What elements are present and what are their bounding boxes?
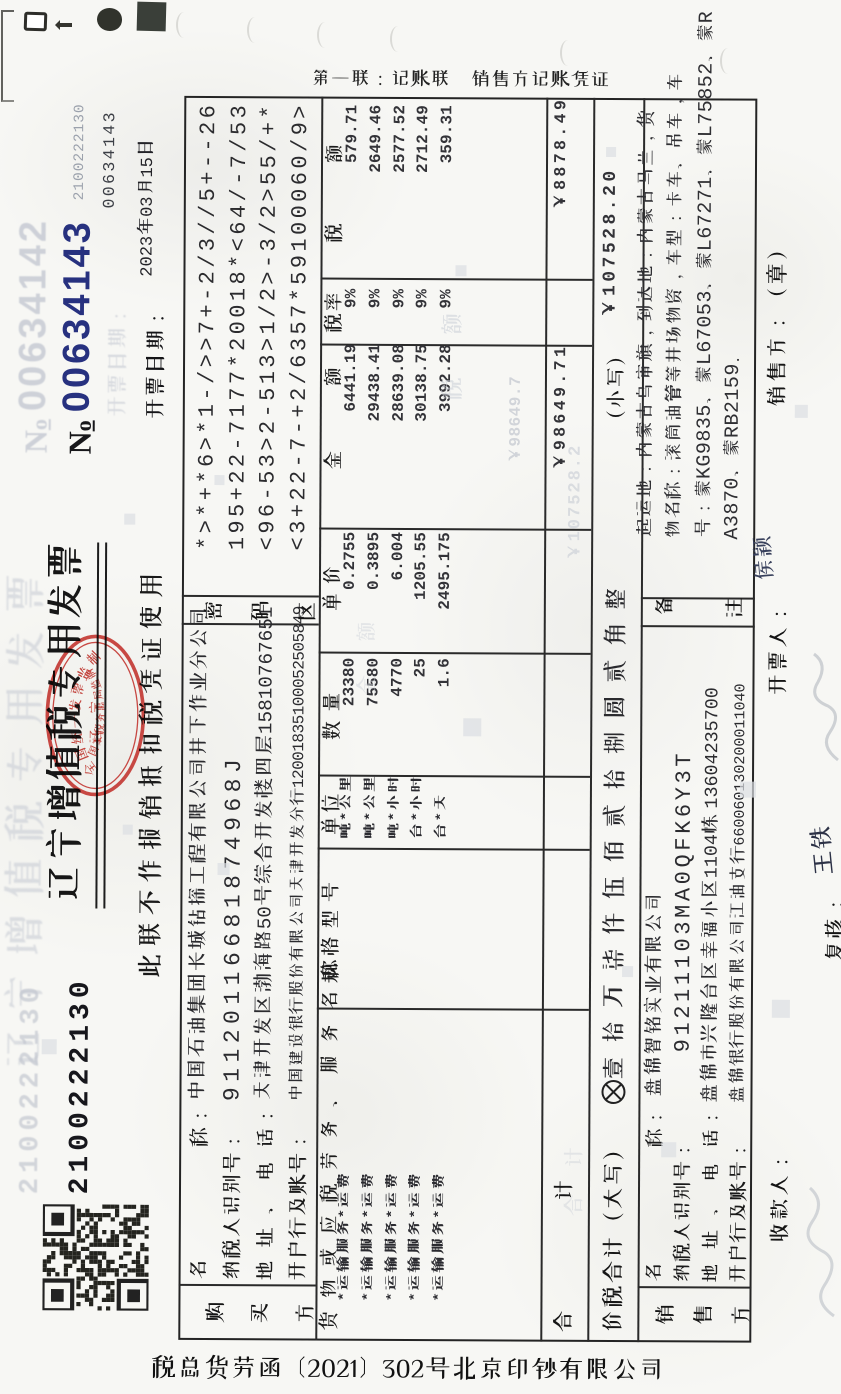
- svg-text:辽宁: 辽宁: [87, 686, 103, 745]
